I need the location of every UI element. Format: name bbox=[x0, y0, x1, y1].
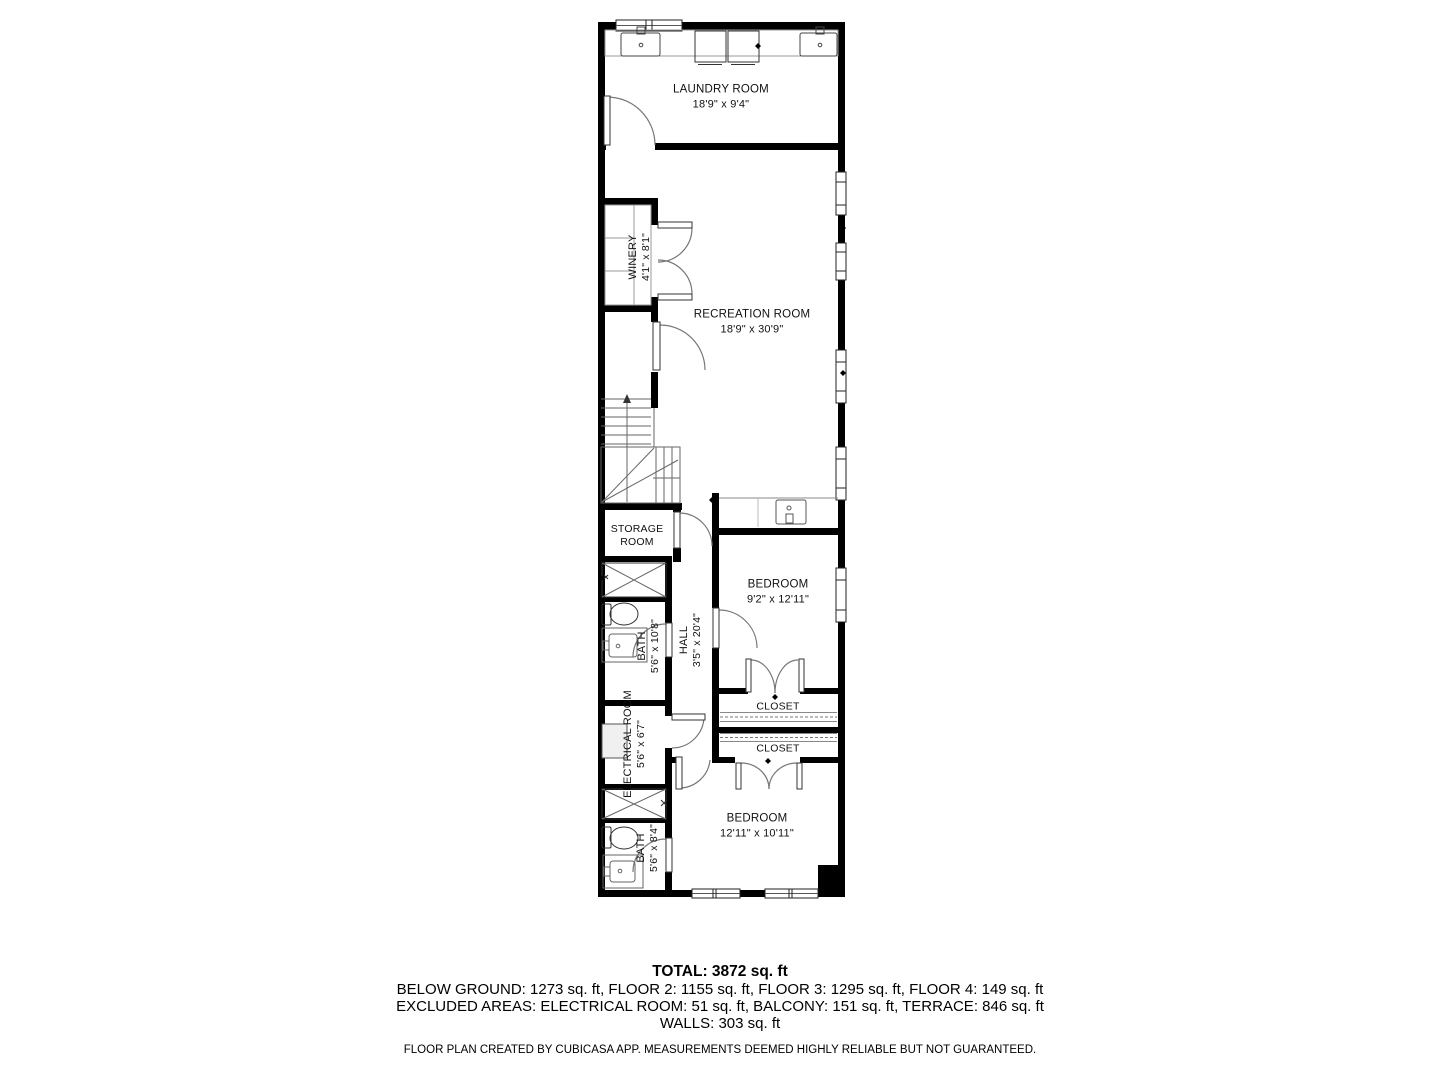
laundry-sink-right bbox=[800, 27, 837, 56]
room-name: BEDROOM bbox=[747, 577, 809, 592]
room-dims: 3'5" x 20'4" bbox=[691, 613, 705, 667]
room-label-closet-lower: CLOSET bbox=[756, 742, 799, 755]
kitchenette-counter bbox=[719, 498, 838, 527]
room-name: HALL bbox=[677, 613, 691, 667]
total-area-text: TOTAL: 3872 sq. ft bbox=[0, 963, 1440, 981]
room-label-electrical: ELECTRICAL ROOM 5'6" x 6'7" bbox=[621, 690, 649, 798]
room-name: BATH bbox=[635, 619, 649, 673]
room-label-recreation: RECREATION ROOM 18'9" x 30'9" bbox=[694, 307, 811, 336]
windows bbox=[616, 20, 846, 898]
room-name: RECREATION ROOM bbox=[694, 307, 811, 322]
floor-plan-drawing bbox=[0, 0, 1440, 1080]
floor-plan-page: LAUNDRY ROOM 18'9" x 9'4" WINERY 4'1" x … bbox=[0, 0, 1440, 1080]
room-label-winery: WINERY 4'1" x 8'1" bbox=[626, 233, 654, 281]
room-name: STORAGE bbox=[611, 523, 664, 536]
room-dims: 18'9" x 9'4" bbox=[673, 97, 769, 111]
room-name: CLOSET bbox=[756, 700, 799, 713]
room-dims: 18'9" x 30'9" bbox=[694, 322, 811, 336]
room-name: LAUNDRY ROOM bbox=[673, 82, 769, 97]
room-name: BEDROOM bbox=[720, 811, 794, 826]
walls-area-text: WALLS: 303 sq. ft bbox=[0, 1015, 1440, 1032]
toilet-icon bbox=[602, 827, 638, 849]
room-dims: 5'6" x 8'4" bbox=[648, 824, 662, 872]
room-name: ROOM bbox=[611, 536, 664, 549]
laundry-fixtures bbox=[605, 27, 838, 65]
kitchenette-sink bbox=[776, 500, 806, 524]
room-label-bedroom-lower: BEDROOM 12'11" x 10'11" bbox=[720, 811, 794, 840]
room-dims: 9'2" x 12'11" bbox=[747, 592, 809, 606]
area-summary: TOTAL: 3872 sq. ft BELOW GROUND: 1273 sq… bbox=[0, 963, 1440, 1032]
room-dims: 4'1" x 8'1" bbox=[640, 233, 654, 281]
room-label-hall: HALL 3'5" x 20'4" bbox=[677, 613, 705, 667]
room-label-bedroom-upper: BEDROOM 9'2" x 12'11" bbox=[747, 577, 809, 606]
stairs bbox=[601, 394, 680, 503]
room-dims: 5'6" x 6'7" bbox=[635, 690, 649, 798]
washer-dryer-icons bbox=[695, 31, 759, 65]
room-label-closet-upper: CLOSET bbox=[756, 700, 799, 713]
disclaimer-text: FLOOR PLAN CREATED BY CUBICASA APP. MEAS… bbox=[0, 1044, 1440, 1056]
room-name: ELECTRICAL ROOM bbox=[621, 690, 635, 798]
room-dims: 5'6" x 10'8" bbox=[649, 619, 663, 673]
room-name: WINERY bbox=[626, 233, 640, 281]
room-name: BATH bbox=[634, 824, 648, 872]
room-label-bath-lower: BATH 5'6" x 8'4" bbox=[634, 824, 662, 872]
room-dims: 12'11" x 10'11" bbox=[720, 826, 794, 840]
room-label-bath-upper: BATH 5'6" x 10'8" bbox=[635, 619, 663, 673]
shower-icon bbox=[602, 563, 666, 597]
excluded-areas-text: EXCLUDED AREAS: ELECTRICAL ROOM: 51 sq. … bbox=[0, 998, 1440, 1015]
room-name: CLOSET bbox=[756, 742, 799, 755]
room-label-laundry: LAUNDRY ROOM 18'9" x 9'4" bbox=[673, 82, 769, 111]
floor-areas-text: BELOW GROUND: 1273 sq. ft, FLOOR 2: 1155… bbox=[0, 981, 1440, 998]
room-label-storage: STORAGE ROOM bbox=[611, 523, 664, 549]
toilet-icon bbox=[602, 603, 638, 625]
